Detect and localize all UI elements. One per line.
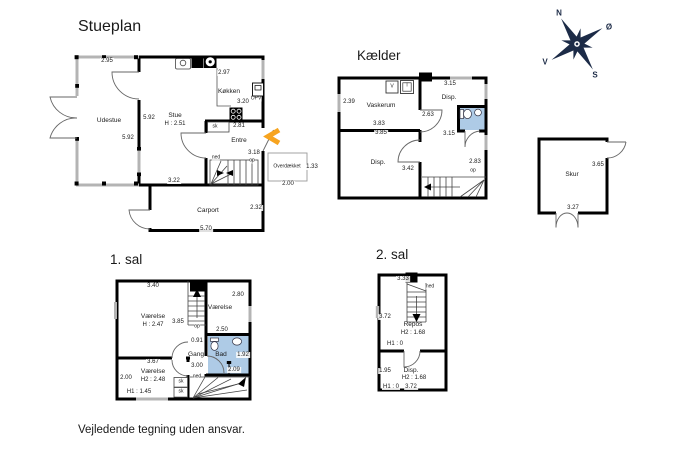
compass-label-e: Ø — [606, 23, 612, 32]
dimension-label: 0.91 — [190, 338, 204, 344]
chimney — [419, 73, 432, 82]
dimension-label: H1 : 0 — [386, 341, 404, 347]
floorplan-drawing — [0, 0, 687, 457]
room-label: Carport — [197, 208, 219, 215]
room-label: Disp. — [371, 160, 386, 167]
dimension-label: 2.39 — [342, 99, 356, 105]
room-label: Disp. — [442, 95, 457, 102]
dimension-label: 2.32 — [249, 205, 263, 211]
annotation-label: op — [249, 159, 255, 164]
annotation-label: V — [390, 85, 393, 90]
dimension-label: 2.09 — [227, 367, 241, 373]
kaelder-stairs — [422, 177, 486, 197]
door-arc — [404, 351, 420, 367]
chimney — [190, 280, 205, 292]
stueplan-walls — [50, 55, 307, 232]
room-label: Repos — [404, 322, 423, 329]
annotation-label: op — [194, 325, 200, 330]
closet-box — [208, 122, 230, 132]
dimension-label: 3.85 — [374, 130, 388, 136]
dimension-label: 3.67 — [146, 359, 160, 365]
annotation-label: ned — [193, 375, 201, 380]
room-label: Skur — [565, 172, 578, 179]
room-label: Køkken — [218, 89, 240, 96]
oven-icon — [192, 56, 204, 68]
dimension-label: 1.33 — [305, 164, 319, 170]
dimension-label: H : 2.51 — [163, 121, 186, 127]
kaelder-title: Kælder — [357, 48, 401, 63]
dimension-label: 5.92 — [142, 115, 156, 121]
dimension-label: 3.27 — [566, 205, 580, 211]
dimension-label: H : 2.47 — [141, 322, 164, 328]
dimension-label: 2.95 — [100, 58, 114, 64]
dimension-label: 3.00 — [190, 363, 204, 369]
basin-icon — [475, 109, 482, 116]
dimension-label: 3.22 — [167, 178, 181, 184]
sal1-stairs-down — [190, 377, 250, 398]
toilet-icon — [211, 338, 219, 341]
dimension-label: H2 : 1.68 — [401, 375, 427, 381]
dimension-label: 3.85 — [171, 319, 185, 325]
dimension-label: 2.83 — [468, 159, 482, 165]
dimension-label: 2.50 — [215, 327, 229, 333]
dimension-label: 3.33 — [396, 276, 410, 282]
room-label: Disp. — [404, 368, 419, 375]
annotation-label: ned — [426, 285, 434, 290]
dimension-label: 3.15 — [443, 81, 457, 87]
dimension-label: H2 : 1.68 — [400, 330, 426, 336]
annotation-label: sk — [179, 390, 184, 395]
entrance-arrow-icon — [268, 130, 279, 143]
annotation-label: ned — [212, 156, 220, 161]
dimension-label: 2.63 — [421, 112, 435, 118]
dimension-label: 3.65 — [591, 162, 605, 168]
kaelder-walls — [337, 73, 487, 200]
stueplan-title: Stueplan — [78, 18, 141, 36]
dimension-label: 2.00 — [119, 375, 133, 381]
dimension-label: 2.81 — [232, 123, 246, 129]
dimension-label: 2.80 — [231, 292, 245, 298]
dimension-label: 3.20 — [236, 99, 250, 105]
room-label: Stue — [168, 113, 181, 120]
room-label: Gang — [188, 352, 204, 359]
disclaimer-text: Vejledende tegning uden ansvar. — [78, 424, 245, 436]
annotation-label: sk — [213, 125, 218, 130]
basin-icon — [232, 338, 241, 345]
room-label: Værelse — [141, 314, 165, 321]
annotation-label: op — [470, 169, 476, 174]
compass-label-n: N — [556, 9, 562, 18]
dimension-label: 3.83 — [372, 121, 386, 127]
annotation-label: OPV — [251, 97, 262, 102]
skur-walls — [537, 137, 626, 227]
dimension-label: 1.95 — [378, 368, 392, 374]
annotation-label: sk — [179, 380, 184, 385]
dimension-label: 3.42 — [401, 166, 415, 172]
room-label: Entre — [231, 138, 247, 145]
sal1-title: 1. sal — [110, 252, 142, 267]
dimension-label: 5.70 — [199, 226, 213, 232]
annotation-label: Overdækket — [273, 165, 300, 170]
dimension-label: 3.15 — [442, 131, 456, 137]
dimension-label: 1.92 — [236, 352, 250, 358]
door-arcs — [50, 72, 274, 229]
dimension-label: 5.92 — [121, 135, 135, 141]
toilet-icon — [460, 110, 464, 119]
dimension-label: H1 : 0 — [382, 384, 400, 390]
room-label: Vaskerum — [367, 103, 396, 110]
compass-rose-icon — [536, 3, 619, 86]
room-label: Bad — [215, 352, 227, 359]
dimension-label: 3.18 — [247, 150, 261, 156]
sal2-title: 2. sal — [376, 247, 408, 262]
dimension-label: H2 : 2.48 — [140, 377, 166, 383]
dimension-label: 3.40 — [146, 283, 160, 289]
water-heater-icon — [253, 83, 264, 96]
floorplan-canvas: Stueplan Kælder 1. sal 2. sal N Ø S V 2.… — [0, 0, 687, 457]
compass-label-s: S — [592, 71, 597, 80]
room-label: Værelse — [208, 305, 232, 312]
compass-label-w: V — [542, 58, 547, 67]
annotation-label: T — [405, 84, 408, 89]
dimension-label: 2.00 — [281, 181, 295, 187]
room-label: Udestue — [97, 118, 121, 125]
dimension-label: 2.97 — [217, 70, 231, 76]
room-label: Værelse — [141, 369, 165, 376]
dimension-label: H1 : 1.45 — [126, 389, 152, 395]
dimension-label: 3.72 — [378, 314, 392, 320]
dimension-label: 3.72 — [404, 384, 418, 390]
